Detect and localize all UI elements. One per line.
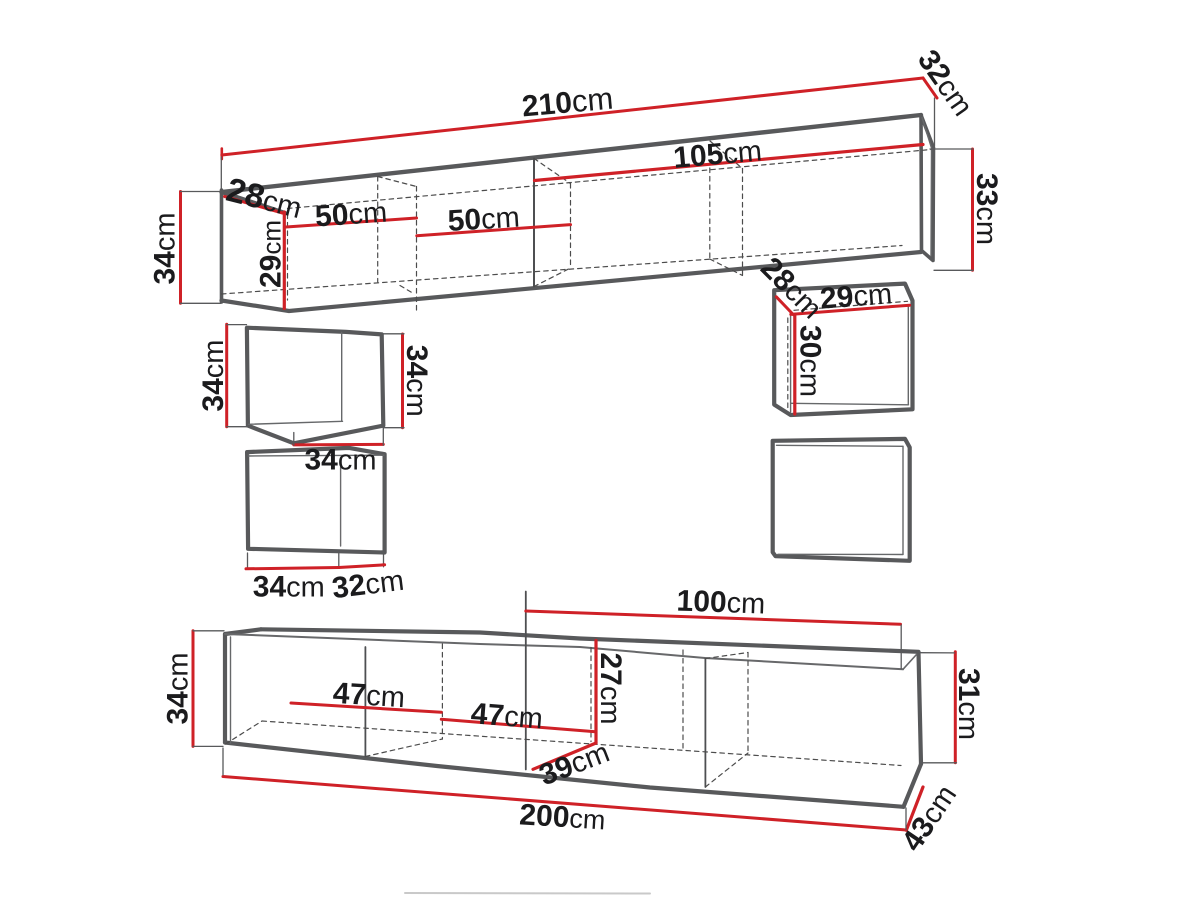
- svg-text:34cm: 34cm: [400, 345, 433, 417]
- svg-text:34cm: 34cm: [253, 570, 325, 603]
- svg-text:200cm: 200cm: [518, 798, 606, 836]
- svg-text:50cm: 50cm: [314, 196, 388, 234]
- svg-text:34cm: 34cm: [304, 444, 376, 477]
- svg-text:32cm: 32cm: [911, 44, 979, 122]
- svg-text:27cm: 27cm: [594, 652, 627, 724]
- svg-text:28cm: 28cm: [223, 171, 306, 226]
- svg-text:105cm: 105cm: [672, 134, 763, 175]
- svg-text:34cm: 34cm: [162, 652, 195, 724]
- svg-text:34cm: 34cm: [149, 212, 182, 284]
- svg-text:32cm: 32cm: [330, 564, 406, 606]
- svg-text:34cm: 34cm: [197, 340, 230, 412]
- svg-text:50cm: 50cm: [447, 201, 521, 238]
- svg-text:29cm: 29cm: [255, 220, 288, 288]
- svg-text:47cm: 47cm: [332, 677, 406, 714]
- svg-text:210cm: 210cm: [520, 81, 614, 124]
- svg-text:33cm: 33cm: [970, 173, 1003, 245]
- svg-text:29cm: 29cm: [819, 277, 893, 316]
- svg-text:47cm: 47cm: [470, 697, 544, 735]
- svg-text:30cm: 30cm: [794, 325, 827, 397]
- svg-text:31cm: 31cm: [952, 668, 985, 740]
- svg-text:100cm: 100cm: [676, 584, 766, 620]
